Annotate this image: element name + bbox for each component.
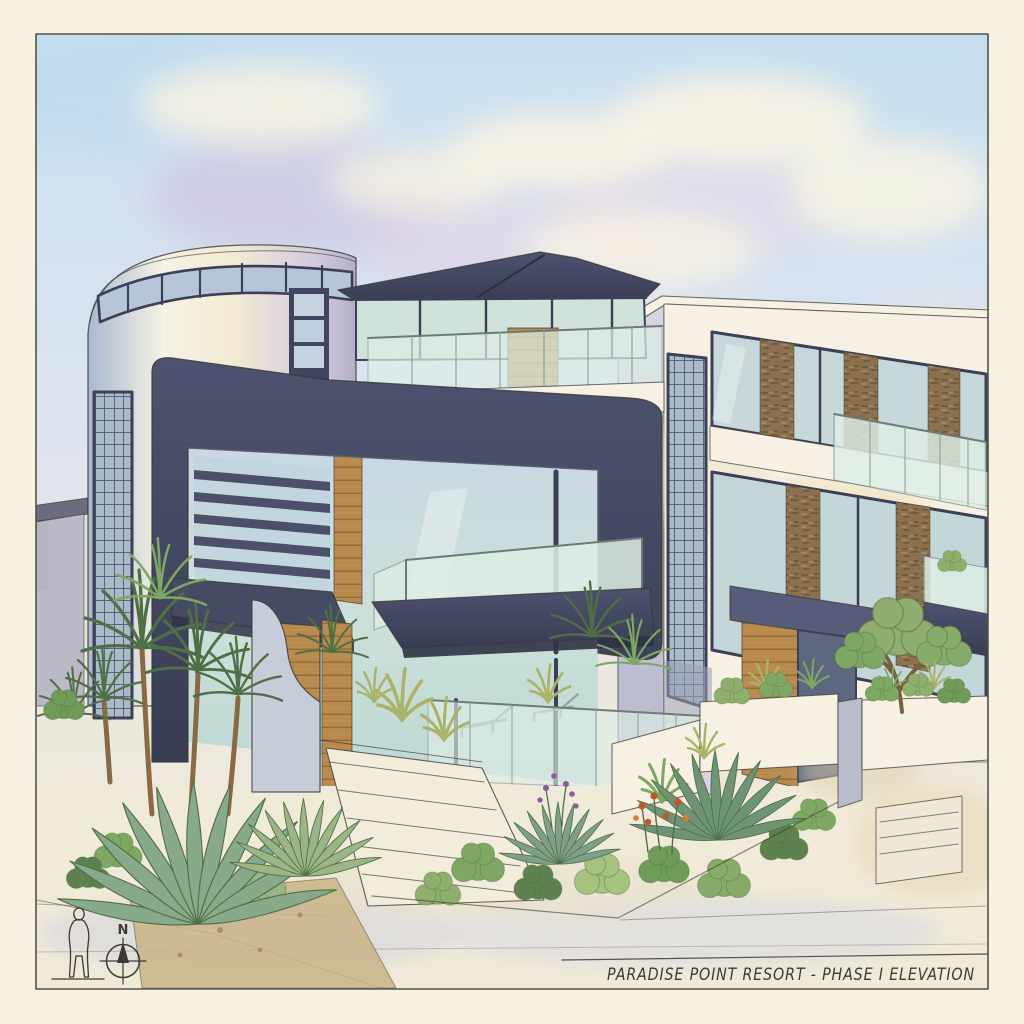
tower-stacked-windows [289, 288, 329, 382]
illustration-canvas: N PARADISE POINT RESORT - PHASE I ELEVAT… [0, 0, 1024, 1024]
right-stairs [876, 796, 962, 884]
elevation-illustration: N PARADISE POINT RESORT - PHASE I ELEVAT… [0, 0, 1024, 1024]
olive-planter [862, 696, 988, 770]
left-building [32, 245, 704, 792]
north-label: N [118, 923, 129, 938]
corner-glazing-strip [668, 354, 706, 708]
title-text: PARADISE POINT RESORT - PHASE I ELEVATIO… [607, 965, 975, 985]
wood-pilaster [334, 452, 362, 604]
tower-grid-window [94, 392, 132, 718]
planter-wall-b [700, 694, 838, 772]
stair-side-wall [838, 698, 862, 808]
